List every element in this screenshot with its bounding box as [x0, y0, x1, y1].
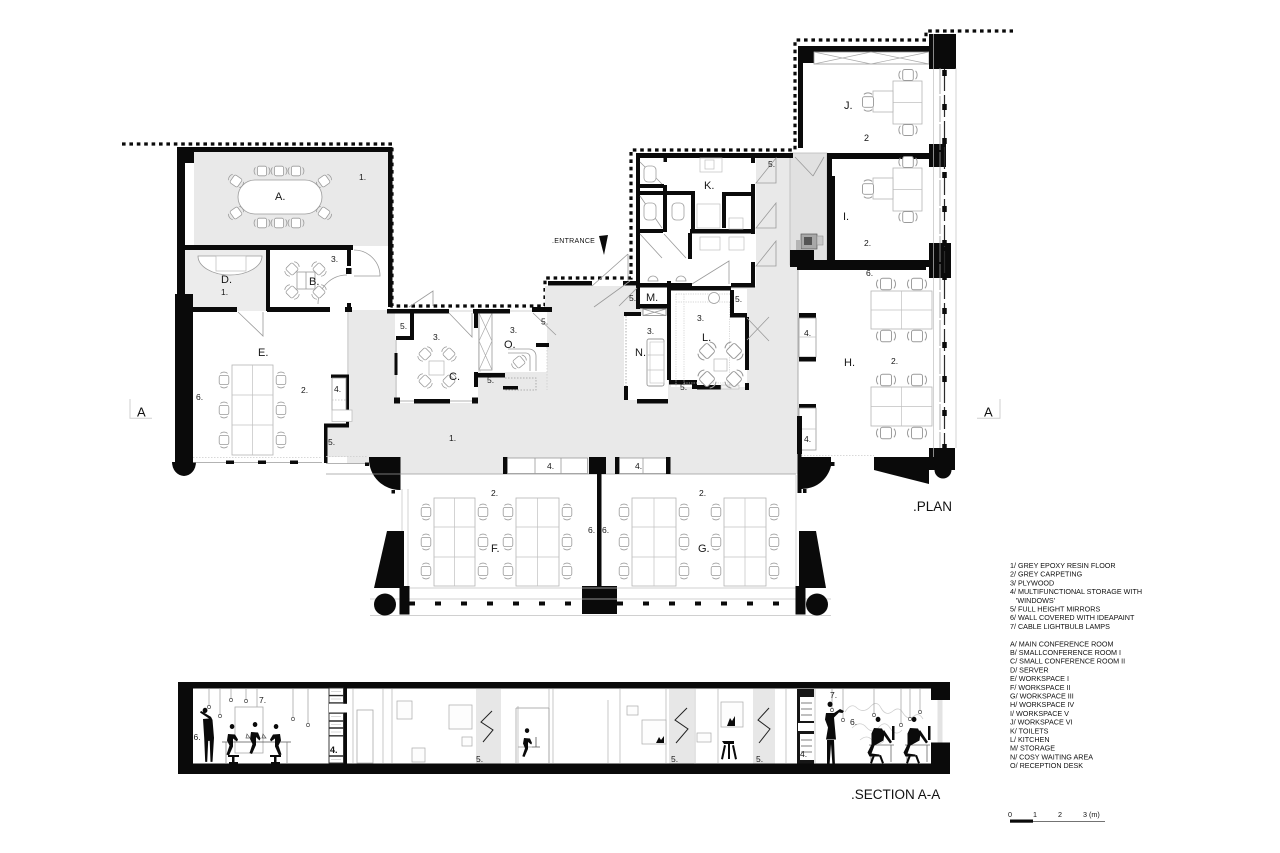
svg-text:K/ TOILETS: K/ TOILETS — [1010, 726, 1049, 735]
svg-text:C/ SMALL CONFERENCE ROOM II: C/ SMALL CONFERENCE ROOM II — [1010, 657, 1125, 666]
svg-text:E.: E. — [258, 347, 268, 359]
svg-text:O/ RECEPTION DESK: O/ RECEPTION DESK — [1010, 761, 1083, 770]
svg-text:F/ WORKSPACE II: F/ WORKSPACE II — [1010, 683, 1071, 692]
svg-text:D.: D. — [221, 274, 232, 286]
svg-text:4/ MULTIFUNCTIONAL STORAGE WIT: 4/ MULTIFUNCTIONAL STORAGE WITH — [1010, 587, 1142, 596]
svg-text:6.: 6. — [602, 525, 609, 535]
svg-text:5/ FULL HEIGHT MIRRORS: 5/ FULL HEIGHT MIRRORS — [1010, 605, 1100, 614]
svg-text:3.: 3. — [647, 326, 654, 336]
svg-text:C.: C. — [449, 371, 460, 383]
svg-text:5.: 5. — [476, 754, 483, 764]
svg-text:5.: 5. — [680, 382, 687, 392]
svg-text:5.: 5. — [400, 321, 407, 331]
svg-text:3 (m): 3 (m) — [1083, 810, 1100, 819]
svg-text:3.: 3. — [697, 313, 704, 323]
svg-text:3.: 3. — [433, 332, 440, 342]
svg-text:N/ COSY WAITING AREA: N/ COSY WAITING AREA — [1010, 752, 1093, 761]
svg-text:M/ STORAGE: M/ STORAGE — [1010, 744, 1055, 753]
svg-text:G.: G. — [698, 543, 710, 555]
svg-text:6/ WALL COVERED WITH IDEAPAINT: 6/ WALL COVERED WITH IDEAPAINT — [1010, 613, 1135, 622]
svg-text:5.: 5. — [328, 437, 335, 447]
svg-text:J.: J. — [844, 100, 853, 112]
svg-text:4.: 4. — [635, 461, 642, 471]
svg-text:5.: 5. — [487, 375, 494, 385]
svg-text:5.: 5. — [671, 754, 678, 764]
svg-text:3.: 3. — [331, 254, 338, 264]
svg-text:N.: N. — [635, 347, 646, 359]
svg-text:3.: 3. — [510, 325, 517, 335]
svg-text:6.: 6. — [850, 717, 857, 727]
svg-text:7/ CABLE LIGHTBULB LAMPS: 7/ CABLE LIGHTBULB LAMPS — [1010, 622, 1110, 631]
svg-text:1: 1 — [1033, 810, 1037, 819]
svg-text:J/ WORKSPACE VI: J/ WORKSPACE VI — [1010, 718, 1073, 727]
svg-text:0: 0 — [1008, 810, 1012, 819]
svg-text:.PLAN: .PLAN — [913, 499, 952, 514]
svg-text:2: 2 — [864, 133, 869, 143]
svg-text:5.: 5. — [629, 293, 636, 303]
svg-text:2.: 2. — [301, 385, 308, 395]
svg-text:2: 2 — [1058, 810, 1062, 819]
svg-text:A/ MAIN CONFERENCE ROOM: A/ MAIN CONFERENCE ROOM — [1010, 639, 1113, 648]
svg-text:6.: 6. — [196, 392, 203, 402]
svg-text:6.: 6. — [866, 268, 873, 278]
svg-text:F.: F. — [491, 543, 500, 555]
svg-text:G/ WORKSPACE III: G/ WORKSPACE III — [1010, 692, 1074, 701]
svg-text:4.: 4. — [547, 461, 554, 471]
svg-text:L.: L. — [702, 332, 711, 344]
svg-text:6.: 6. — [194, 732, 201, 742]
svg-text:2.: 2. — [891, 356, 898, 366]
svg-text:.ENTRANCE: .ENTRANCE — [552, 238, 595, 245]
svg-text:A: A — [984, 405, 993, 420]
svg-text:6.: 6. — [588, 525, 595, 535]
svg-text:E/ WORKSPACE I: E/ WORKSPACE I — [1010, 674, 1069, 683]
svg-text:3/ PLYWOOD: 3/ PLYWOOD — [1010, 578, 1054, 587]
svg-text:4.: 4. — [334, 384, 341, 394]
svg-text:2/ GREY CARPETING: 2/ GREY CARPETING — [1010, 570, 1083, 579]
svg-text:O.: O. — [504, 339, 516, 351]
svg-text:'WINDOWS': 'WINDOWS' — [1016, 596, 1056, 605]
svg-text:D/ SERVER: D/ SERVER — [1010, 665, 1049, 674]
svg-text:M.: M. — [646, 292, 658, 304]
svg-text:2.: 2. — [491, 488, 498, 498]
svg-text:4.: 4. — [800, 749, 807, 759]
svg-text:1.: 1. — [221, 287, 228, 297]
svg-text:7.: 7. — [830, 690, 837, 700]
svg-text:5.: 5. — [756, 754, 763, 764]
svg-text:I/ WORKSPACE V: I/ WORKSPACE V — [1010, 709, 1069, 718]
svg-text:2.: 2. — [864, 238, 871, 248]
svg-text:7.: 7. — [259, 695, 266, 705]
svg-text:5.: 5. — [768, 159, 775, 169]
svg-text:1.: 1. — [449, 433, 456, 443]
svg-text:5.: 5. — [541, 317, 548, 327]
svg-text:B.: B. — [309, 276, 319, 288]
svg-text:H.: H. — [844, 357, 855, 369]
svg-text:2.: 2. — [699, 488, 706, 498]
svg-text:H/ WORKSPACE IV: H/ WORKSPACE IV — [1010, 700, 1074, 709]
svg-text:4.: 4. — [804, 434, 811, 444]
svg-text:I.: I. — [843, 211, 849, 223]
svg-text:4.: 4. — [330, 745, 338, 755]
svg-text:L/ KITCHEN: L/ KITCHEN — [1010, 735, 1050, 744]
svg-text:A.: A. — [275, 191, 285, 203]
svg-text:4.: 4. — [804, 328, 811, 338]
svg-text:1.: 1. — [359, 172, 366, 182]
svg-text:A: A — [137, 405, 146, 420]
svg-text:K.: K. — [704, 180, 714, 192]
svg-text:1/ GREY EPOXY RESIN FLOOR: 1/ GREY EPOXY RESIN FLOOR — [1010, 561, 1116, 570]
svg-text:5.: 5. — [735, 294, 742, 304]
svg-text:.SECTION A-A: .SECTION A-A — [851, 787, 940, 802]
svg-text:B/ SMALLCONFERENCE ROOM I: B/ SMALLCONFERENCE ROOM I — [1010, 648, 1121, 657]
